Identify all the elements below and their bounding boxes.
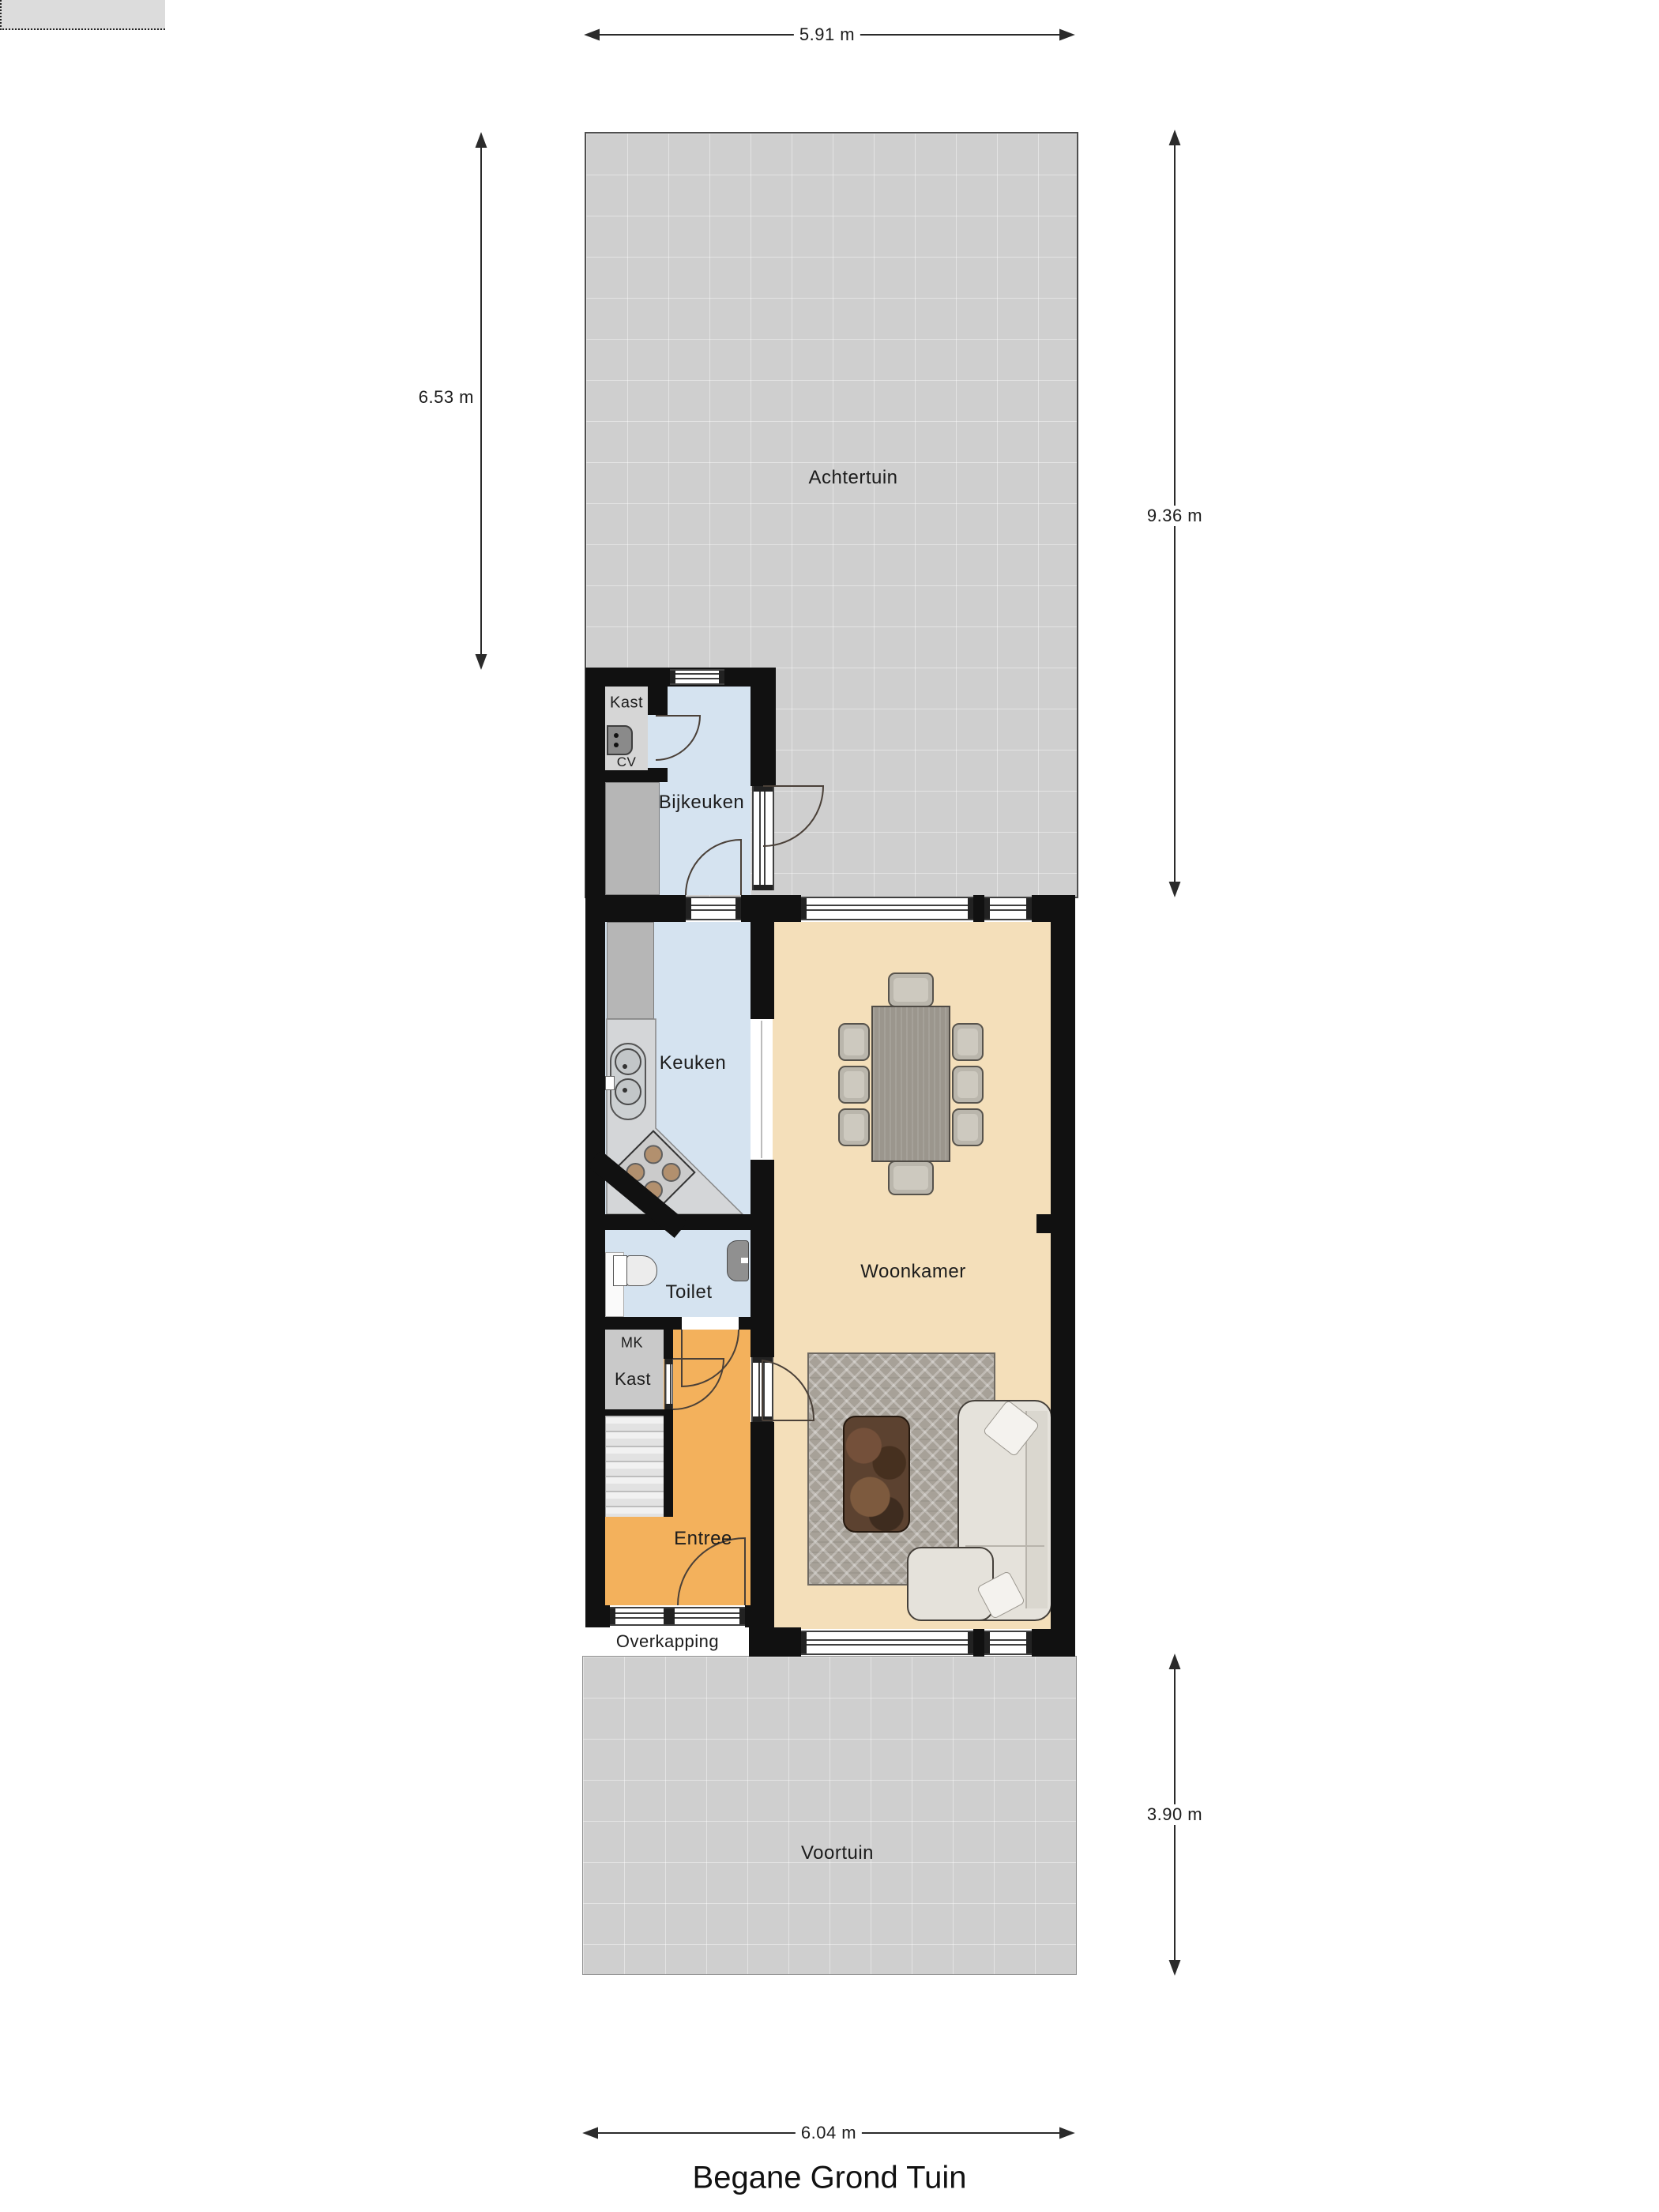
arrowhead-icon (476, 134, 486, 147)
kitchen-label: Keuken (660, 1052, 726, 1074)
living-room-label: Woonkamer (860, 1261, 965, 1283)
arrowhead-icon (585, 2128, 597, 2138)
arrowhead-icon (1170, 882, 1179, 895)
utility-room-label: Bijkeuken (659, 792, 745, 814)
arrowhead-icon (1170, 132, 1179, 145)
dim-label-right: 9.36 m (1142, 506, 1208, 526)
boiler-label: CV (617, 754, 637, 770)
carport-label: Overkapping (616, 1631, 719, 1652)
door-swings (656, 716, 823, 1605)
front-garden-label: Voortuin (801, 1842, 874, 1864)
garden-door-swing (763, 786, 823, 846)
dim-label-front: 3.90 m (1142, 1804, 1208, 1825)
arrowhead-icon (1060, 30, 1073, 39)
hallway-label: Entree (674, 1528, 732, 1550)
linework-overlay (0, 0, 1659, 2212)
kitchen-chamfer-wall (594, 1158, 681, 1230)
meter-closet-label: MK (621, 1335, 643, 1352)
dimension-lines (476, 30, 1179, 2138)
living-door-swing (762, 1360, 814, 1420)
dim-label-bottom: 6.04 m (796, 2123, 862, 2143)
toilet-label: Toilet (665, 1281, 712, 1303)
closet-door-swing (656, 716, 700, 760)
arrowhead-icon (1170, 1656, 1179, 1668)
arrowhead-icon (476, 655, 486, 668)
back-garden-label: Achtertuin (808, 467, 897, 489)
arrowhead-icon (1170, 1961, 1179, 1973)
utility-door-swing (686, 840, 741, 895)
arrowhead-icon (586, 30, 599, 39)
hall-closet-label: Kast (615, 1369, 651, 1390)
arrowhead-icon (1060, 2128, 1073, 2138)
boiler-closet-label: Kast (610, 694, 643, 713)
page-title: Begane Grond Tuin (693, 2161, 967, 2196)
dim-label-left: 6.53 m (419, 387, 474, 408)
floorplan-canvas: 5.91 m 6.53 m 9.36 m 3.90 m 6.04 m Achte… (0, 0, 1659, 2212)
dim-label-top: 5.91 m (794, 24, 860, 45)
